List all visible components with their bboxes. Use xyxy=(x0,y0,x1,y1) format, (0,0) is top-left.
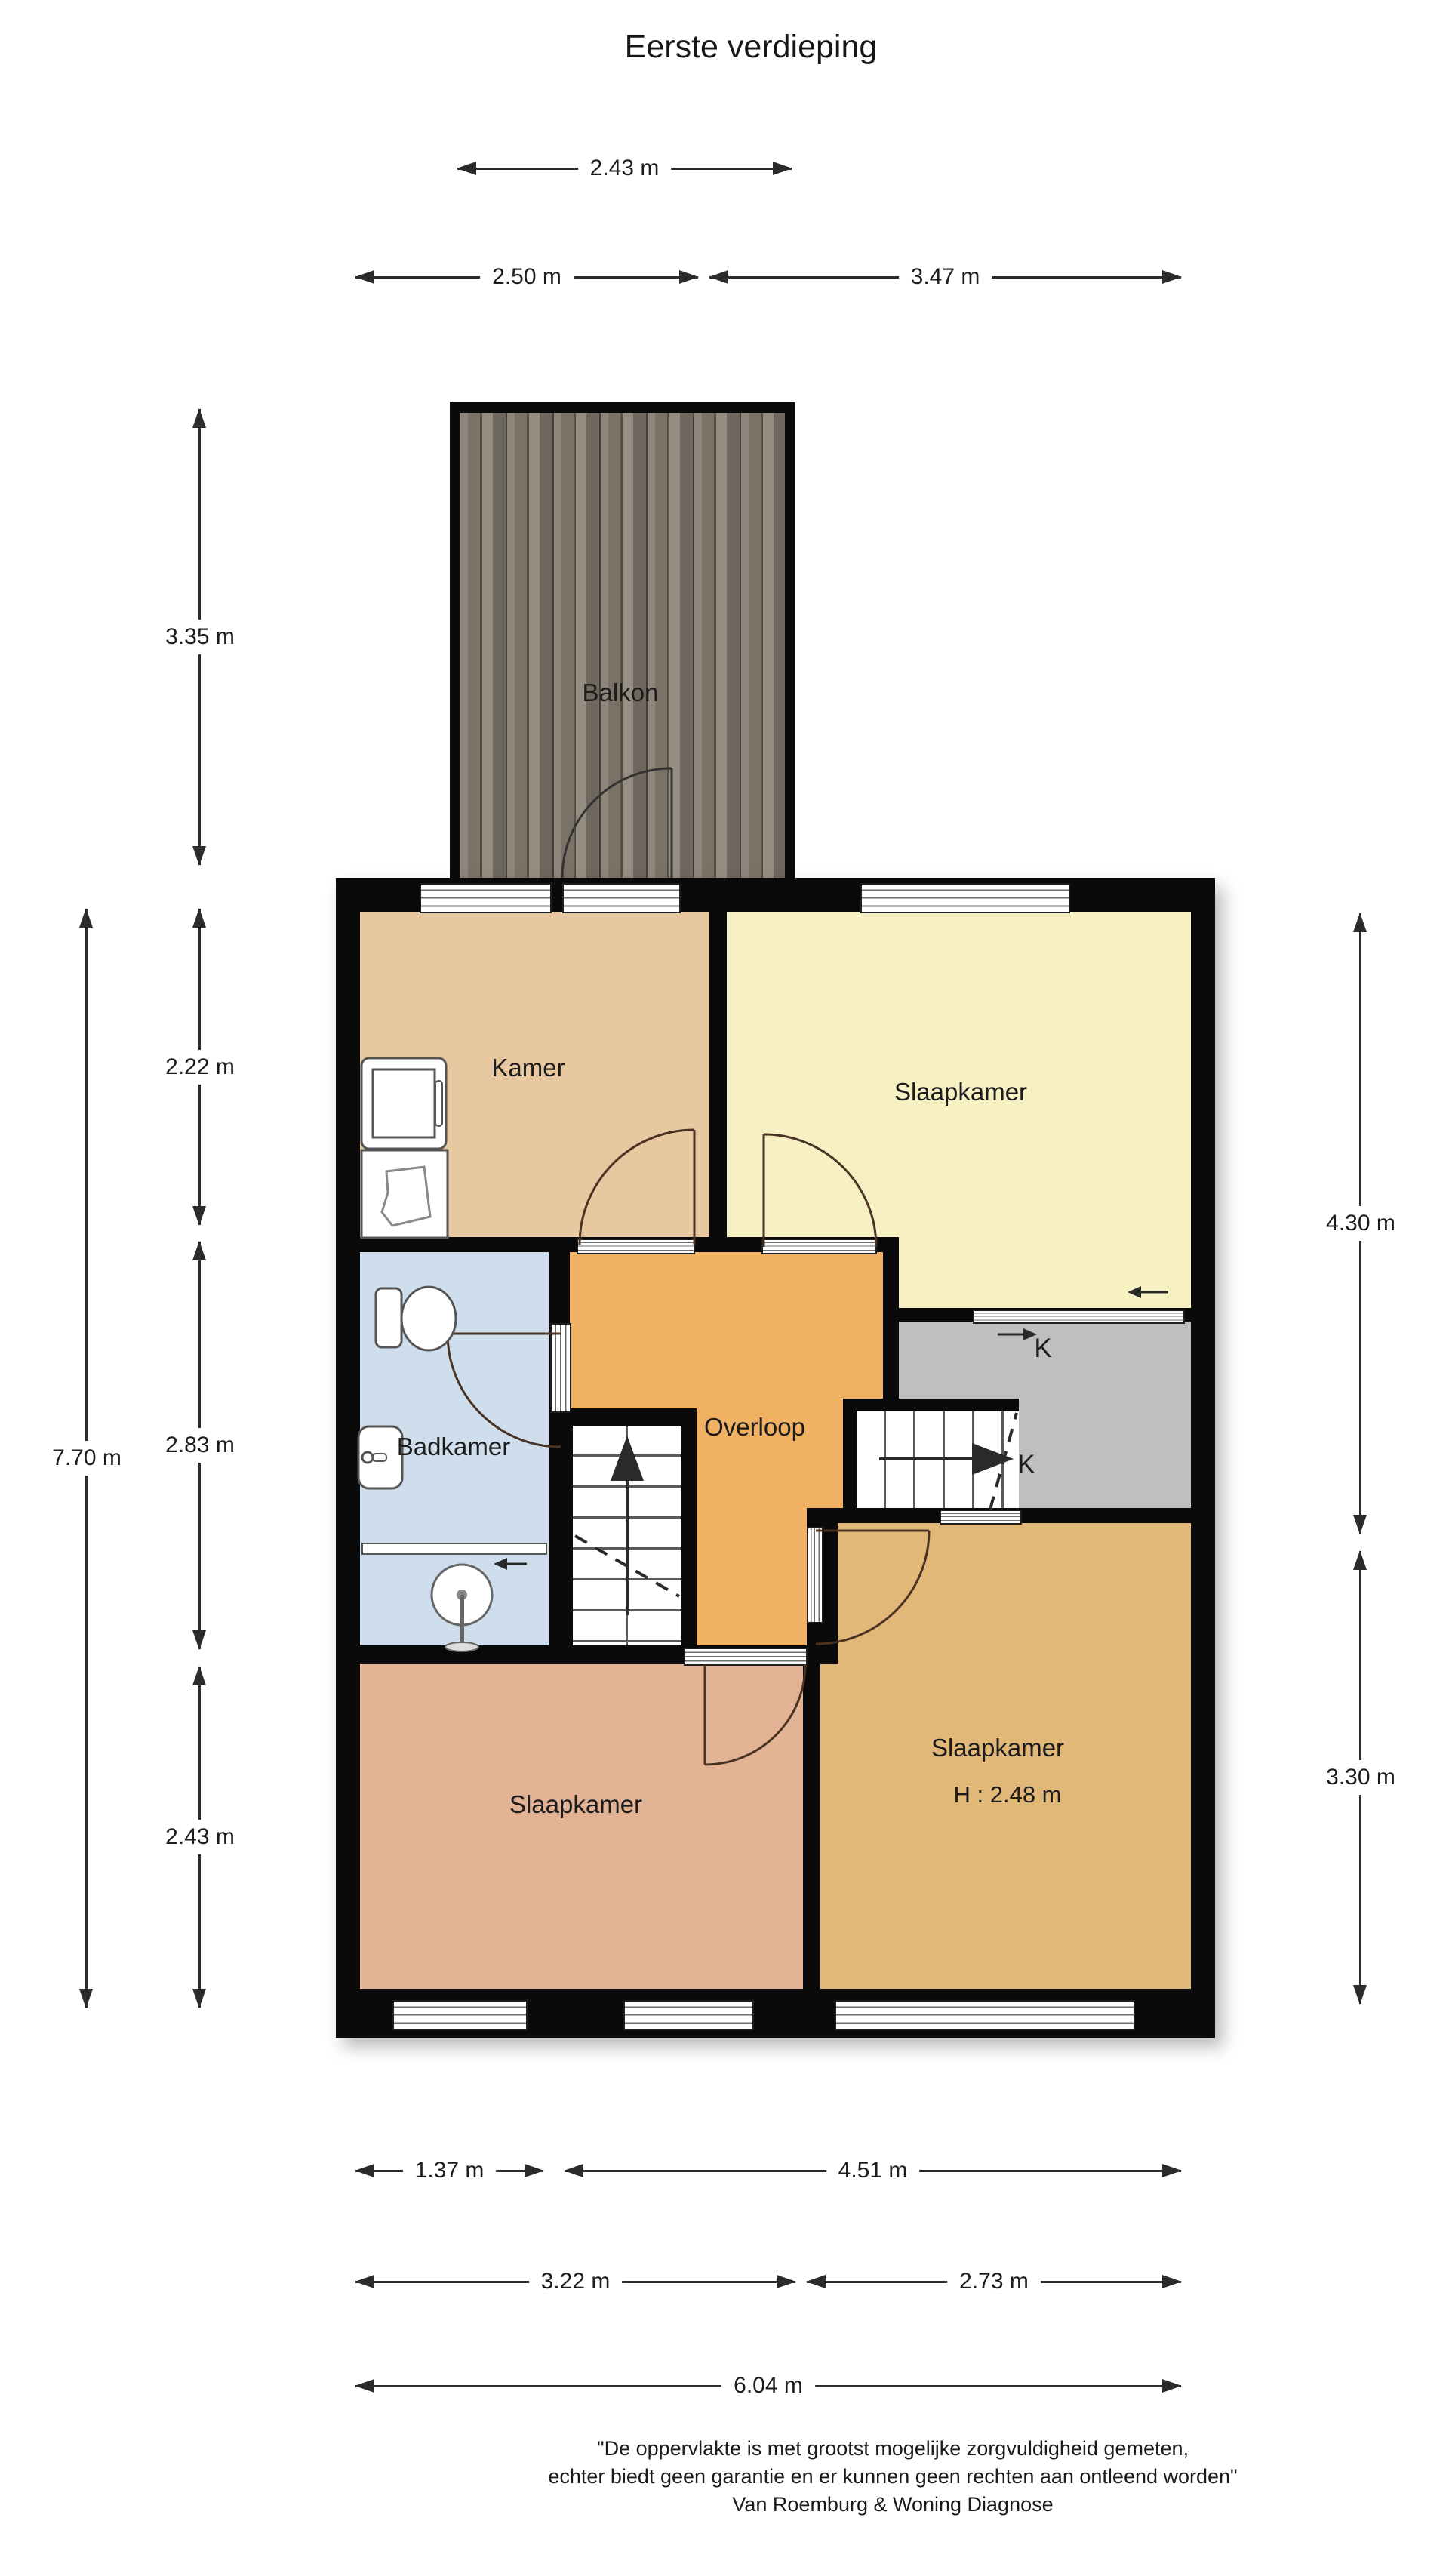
dim-label: 3.35 m xyxy=(159,620,241,654)
dim-label: 6.04 m xyxy=(721,2371,815,2400)
window xyxy=(860,883,1070,913)
dim-middle-height: 2.83 m xyxy=(198,1242,201,1649)
label-slaapkamer-3: Slaapkamer xyxy=(931,1734,1064,1762)
disclaimer-line: "De oppervlakte is met grootst mogelijke… xyxy=(365,2435,1421,2463)
window-closet-stairs xyxy=(940,1510,1022,1525)
staircase-closet xyxy=(857,1411,1019,1510)
floorplan-page: Eerste verdieping 2.43 m 2.50 m 3.47 m 3… xyxy=(0,0,1449,2576)
dim-top-left: 2.50 m xyxy=(355,276,698,279)
door-opening-slaapkamer-2 xyxy=(684,1648,808,1666)
wall xyxy=(549,1252,570,1645)
label-closet-2: K xyxy=(1017,1450,1035,1480)
disclaimer-line: Van Roemburg & Woning Diagnose xyxy=(365,2491,1421,2519)
window xyxy=(392,2000,528,2030)
dim-bottom-height-left: 2.43 m xyxy=(198,1667,201,2008)
dim-bottom-total: 6.04 m xyxy=(355,2385,1181,2387)
dim-label: 2.73 m xyxy=(947,2267,1041,2296)
door-opening-slaapkamer-1 xyxy=(761,1239,877,1254)
wall xyxy=(843,1411,857,1510)
dim-balkon-height: 3.35 m xyxy=(198,409,201,865)
label-slaapkamer-2: Slaapkamer xyxy=(509,1790,642,1819)
label-overloop: Overloop xyxy=(704,1413,805,1442)
dim-label: 1.37 m xyxy=(403,2156,497,2185)
dim-label: 4.30 m xyxy=(1320,1206,1401,1241)
dim-label: 2.22 m xyxy=(159,1050,241,1085)
window xyxy=(835,2000,1135,2030)
wall xyxy=(570,1408,697,1426)
window xyxy=(562,883,681,913)
dim-label: 3.47 m xyxy=(899,263,992,291)
dim-label: 2.83 m xyxy=(159,1428,241,1463)
label-kamer: Kamer xyxy=(491,1054,565,1082)
dim-label: 3.22 m xyxy=(529,2267,623,2296)
dim-right-upper: 4.30 m xyxy=(1359,913,1361,1534)
dim-bottom-row2-right: 2.73 m xyxy=(807,2281,1181,2283)
room-overloop xyxy=(697,1510,807,1645)
dim-bottom-row2-left: 3.22 m xyxy=(355,2281,795,2283)
dim-right-lower: 3.30 m xyxy=(1359,1551,1361,2004)
window xyxy=(623,2000,754,2030)
balkon-deck xyxy=(460,413,785,878)
label-slaapkamer-1: Slaapkamer xyxy=(894,1078,1027,1106)
door-opening-badkamer xyxy=(550,1323,571,1413)
wall xyxy=(883,1237,899,1322)
label-closet-1: K xyxy=(1034,1334,1051,1364)
wall xyxy=(803,1664,820,1989)
room-slaapkamer-2 xyxy=(360,1664,803,1989)
dim-label: 3.30 m xyxy=(1320,1760,1401,1795)
wall xyxy=(681,1408,697,1646)
dim-label: 7.70 m xyxy=(46,1441,128,1476)
window xyxy=(420,883,552,913)
disclaimer: "De oppervlakte is met grootst mogelijke… xyxy=(365,2435,1421,2519)
dim-bottom-row1-right: 4.51 m xyxy=(565,2170,1181,2172)
room-slaapkamer-3 xyxy=(820,1664,1191,1989)
balkon-wall-right xyxy=(785,402,795,878)
wall xyxy=(807,1508,820,1527)
room-overloop xyxy=(570,1250,883,1411)
dim-top-right: 3.47 m xyxy=(709,276,1181,279)
room-slaapkamer-3 xyxy=(838,1523,1191,1664)
disclaimer-line: echter biedt geen garantie en er kunnen … xyxy=(365,2463,1421,2491)
dim-label: 4.51 m xyxy=(826,2156,920,2185)
staircase-up xyxy=(573,1426,681,1646)
door-opening-kamer xyxy=(577,1239,695,1254)
dim-bottom-row1-left: 1.37 m xyxy=(355,2170,543,2172)
balkon-wall-left xyxy=(450,402,460,878)
wall xyxy=(843,1399,1019,1411)
page-title: Eerste verdieping xyxy=(449,29,1053,66)
label-balkon: Balkon xyxy=(583,679,659,707)
wall xyxy=(709,912,727,1252)
window-closet xyxy=(973,1310,1185,1324)
dim-label: 2.43 m xyxy=(578,154,672,183)
label-badkamer: Badkamer xyxy=(397,1433,510,1461)
dim-kamer-height: 2.22 m xyxy=(198,909,201,1225)
dim-total-height-left: 7.70 m xyxy=(85,909,88,2008)
balkon-wall-top xyxy=(450,402,795,413)
label-slaapkamer-3-height: H : 2.48 m xyxy=(954,1781,1062,1808)
door-opening-slaapkamer-3 xyxy=(807,1527,823,1623)
dim-balkon-width: 2.43 m xyxy=(457,168,792,170)
dim-label: 2.50 m xyxy=(480,263,574,291)
dim-label: 2.43 m xyxy=(159,1820,241,1854)
